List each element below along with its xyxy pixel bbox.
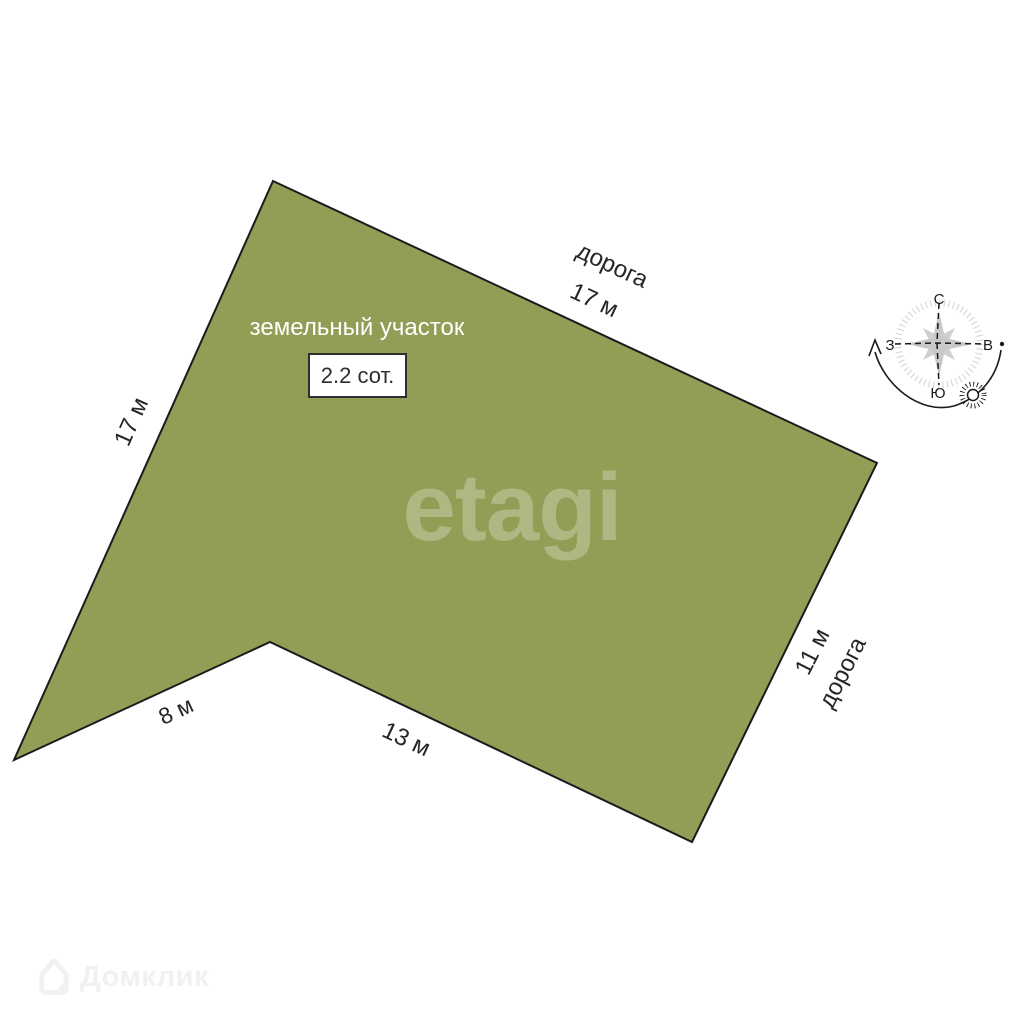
etagi-watermark: etagi	[402, 453, 621, 563]
domclick-watermark-text: Домклик	[80, 961, 209, 994]
plot-area-value: 2.2 сот.	[321, 363, 394, 389]
sun-path-start-dot	[1000, 342, 1004, 346]
plot-title-label: земельный участок	[250, 314, 465, 342]
compass-north-label: С	[934, 291, 945, 308]
plot-area-box: 2.2 сот.	[308, 353, 407, 398]
land-plot-scheme: etagi земельный участок 2.2 сот. дорога …	[0, 0, 1024, 1024]
compass-rose: С Ю З В	[864, 272, 1014, 422]
sun-icon	[968, 390, 979, 401]
compass-east-label: В	[983, 337, 993, 354]
compass-south-label: Ю	[930, 385, 945, 402]
domclick-watermark: Домклик	[36, 956, 209, 998]
compass-west-label: З	[885, 337, 894, 354]
domclick-house-icon	[36, 956, 72, 998]
